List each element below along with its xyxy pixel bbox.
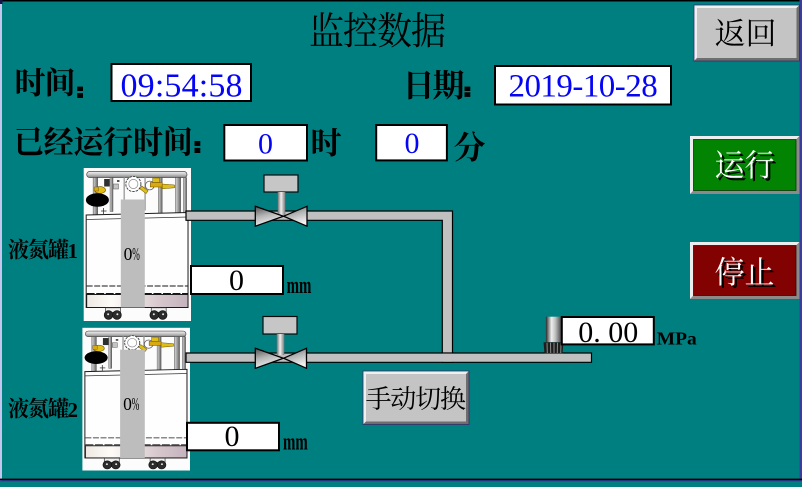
svg-text:0: 0: [229, 264, 244, 297]
svg-text:MPa: MPa: [657, 329, 698, 349]
svg-text:2: 2: [68, 398, 79, 422]
svg-text:0. 00: 0. 00: [578, 316, 638, 349]
svg-text:09:54:58: 09:54:58: [121, 68, 243, 105]
svg-text:0: 0: [405, 127, 420, 160]
svg-text:mm: mm: [287, 273, 312, 299]
svg-text:%: %: [132, 396, 140, 415]
svg-text:0: 0: [258, 127, 273, 160]
svg-text:1: 1: [68, 239, 79, 263]
svg-text:%: %: [132, 246, 140, 265]
svg-text:0: 0: [124, 244, 133, 264]
svg-text:0: 0: [225, 420, 240, 453]
svg-text:mm: mm: [283, 429, 308, 455]
svg-text:0: 0: [123, 394, 132, 414]
svg-text:2019-10-28: 2019-10-28: [509, 68, 658, 104]
